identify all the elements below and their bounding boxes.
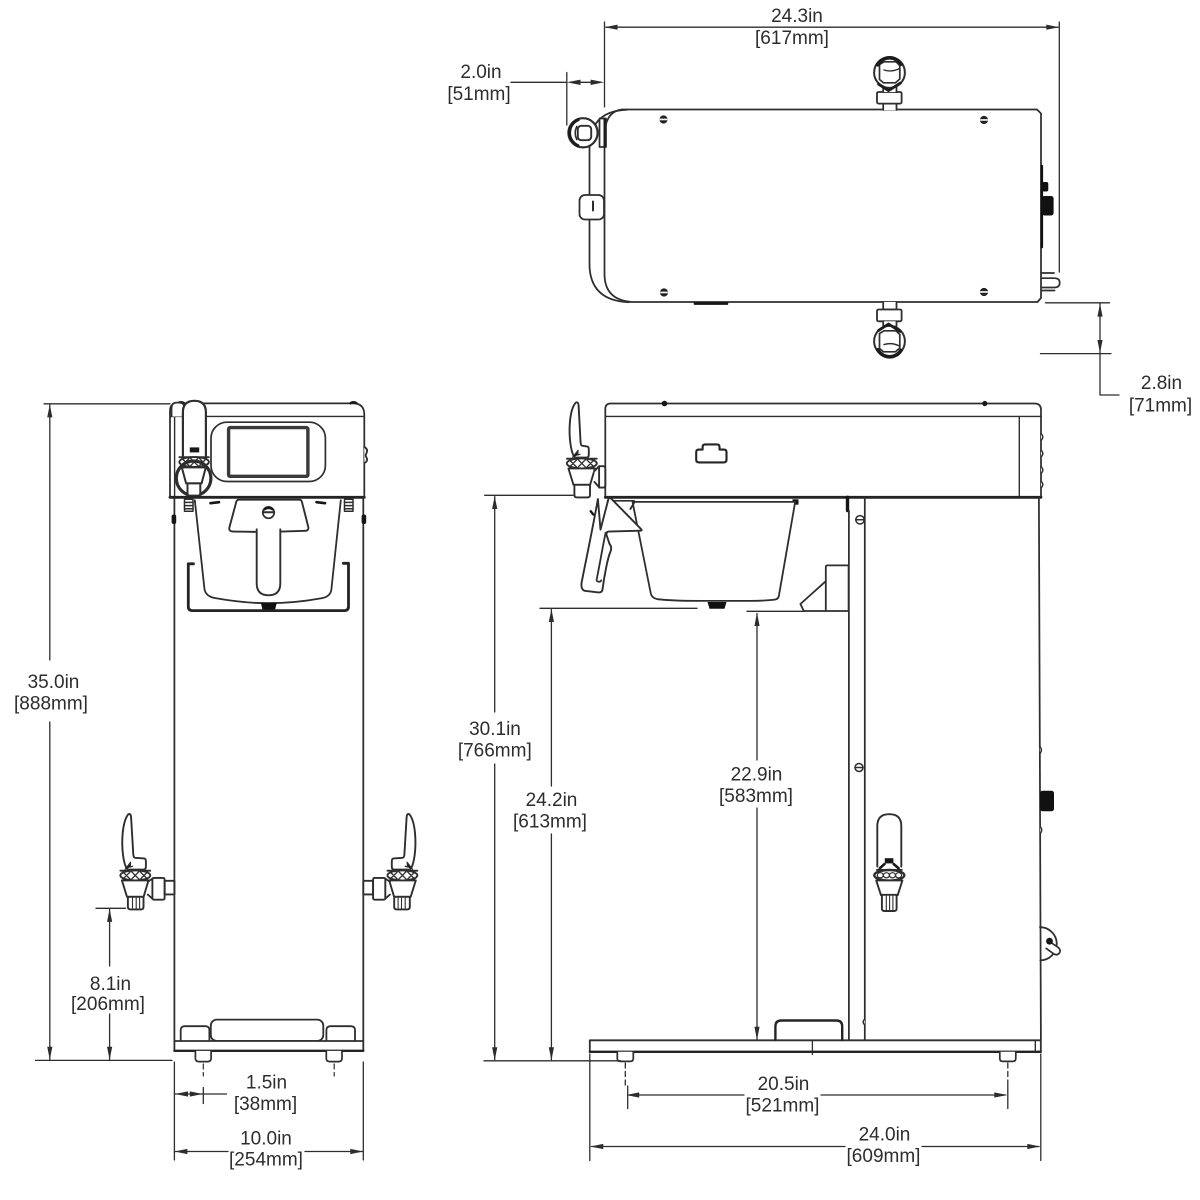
svg-text:2.8in: 2.8in bbox=[1141, 373, 1182, 394]
svg-text:[888mm]: [888mm] bbox=[14, 694, 88, 715]
svg-text:35.0in: 35.0in bbox=[28, 672, 80, 693]
svg-text:[609mm]: [609mm] bbox=[847, 1146, 921, 1167]
svg-text:[71mm]: [71mm] bbox=[1129, 396, 1192, 417]
svg-text:[51mm]: [51mm] bbox=[447, 84, 510, 105]
svg-text:10.0in: 10.0in bbox=[240, 1129, 292, 1150]
svg-text:[613mm]: [613mm] bbox=[513, 812, 587, 833]
svg-text:24.2in: 24.2in bbox=[526, 790, 578, 811]
svg-text:20.5in: 20.5in bbox=[758, 1074, 810, 1095]
svg-text:22.9in: 22.9in bbox=[731, 765, 783, 786]
svg-text:[583mm]: [583mm] bbox=[719, 786, 793, 807]
svg-text:24.0in: 24.0in bbox=[859, 1125, 911, 1146]
svg-text:[521mm]: [521mm] bbox=[746, 1096, 820, 1117]
svg-text:1.5in: 1.5in bbox=[246, 1073, 287, 1094]
svg-text:30.1in: 30.1in bbox=[469, 719, 521, 740]
svg-text:[254mm]: [254mm] bbox=[229, 1150, 303, 1171]
svg-text:8.1in: 8.1in bbox=[90, 974, 131, 995]
svg-text:24.3in: 24.3in bbox=[771, 6, 823, 27]
svg-text:2.0in: 2.0in bbox=[460, 62, 501, 83]
svg-text:[617mm]: [617mm] bbox=[755, 28, 829, 49]
svg-text:[766mm]: [766mm] bbox=[458, 741, 532, 762]
svg-text:[38mm]: [38mm] bbox=[234, 1094, 297, 1115]
svg-text:[206mm]: [206mm] bbox=[71, 994, 145, 1015]
